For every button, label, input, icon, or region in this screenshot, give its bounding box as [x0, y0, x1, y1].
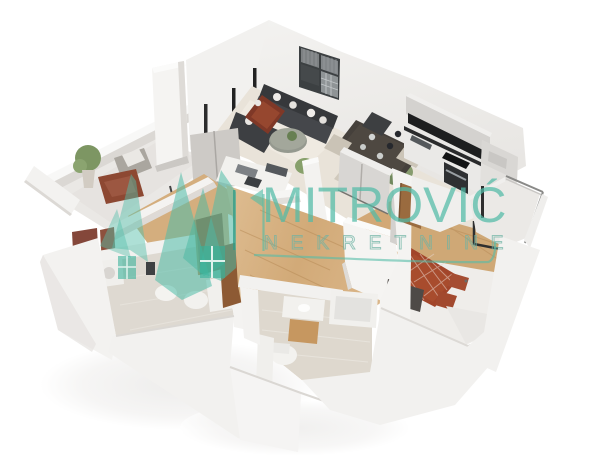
- svg-text:NEKRETNINE: NEKRETNINE: [264, 233, 516, 254]
- svg-text:MITROVIĆ: MITROVIĆ: [262, 177, 506, 233]
